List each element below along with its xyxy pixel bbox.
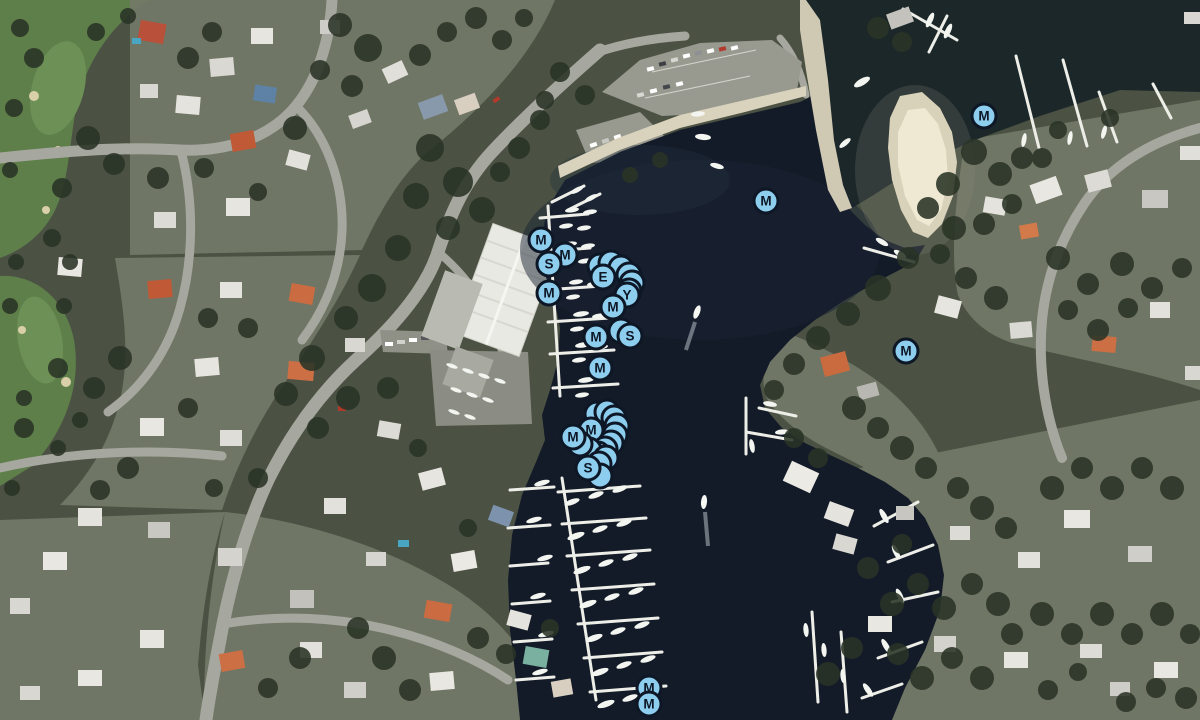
map-pin-s[interactable]: S xyxy=(617,323,644,350)
pins-layer: EYMMMSMMSMMMSMMMMM xyxy=(0,0,1200,720)
map-pin-m[interactable]: M xyxy=(528,227,555,254)
map-pin-m[interactable]: M xyxy=(536,280,563,307)
map-pin-m[interactable]: M xyxy=(600,294,627,321)
map-pin-m[interactable]: M xyxy=(560,424,587,451)
map-pin-m[interactable]: M xyxy=(636,691,663,718)
map-pin-m[interactable]: M xyxy=(893,338,920,365)
map-pin-m[interactable]: M xyxy=(753,188,780,215)
map-pin-s[interactable]: S xyxy=(536,251,563,278)
map-pin-e[interactable]: E xyxy=(590,264,617,291)
map-pin-m[interactable]: M xyxy=(587,355,614,382)
map-pin-m[interactable]: M xyxy=(583,324,610,351)
map-viewport[interactable]: EYMMMSMMSMMMSMMMMM xyxy=(0,0,1200,720)
map-pin-s[interactable]: S xyxy=(575,455,602,482)
map-pin-m[interactable]: M xyxy=(971,103,998,130)
